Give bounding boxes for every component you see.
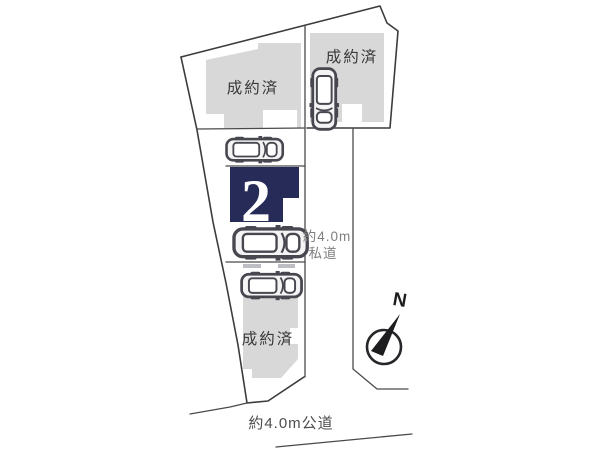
- footprint-notch: [263, 110, 297, 128]
- public-road-far-edge: [276, 434, 412, 447]
- wheel-stop: [278, 264, 295, 268]
- public-road-near-edge: [190, 403, 247, 414]
- lot-status-label: 成約済: [227, 79, 280, 97]
- lot-status-label: 成約済: [326, 48, 379, 66]
- public-road-width-label: 約4.0m公道: [248, 415, 333, 432]
- site-plan-canvas: 2 成約済 成約済 成約済 約4.0m 私道 約4.0m公道 N: [0, 0, 600, 450]
- car-top-view-icon: [309, 69, 339, 130]
- lot-2-number: 2: [241, 168, 271, 234]
- compass-n-label: N: [391, 289, 408, 312]
- car-top-view-icon: [242, 271, 302, 300]
- private-road-type-label: 私道: [309, 246, 338, 261]
- lot-divider-upper: [197, 128, 305, 129]
- private-road-width-label: 約4.0m: [303, 229, 352, 244]
- wheel-stop: [243, 264, 261, 268]
- car-top-view-icon: [227, 136, 283, 163]
- footprint-notch: [342, 104, 362, 122]
- site-plan-page: 2 成約済 成約済 成約済 約4.0m 私道 約4.0m公道 N: [0, 0, 600, 450]
- car-top-view-icon: [234, 225, 307, 261]
- lot-status-label: 成約済: [242, 330, 295, 348]
- north-arrow-icon: N: [367, 289, 408, 364]
